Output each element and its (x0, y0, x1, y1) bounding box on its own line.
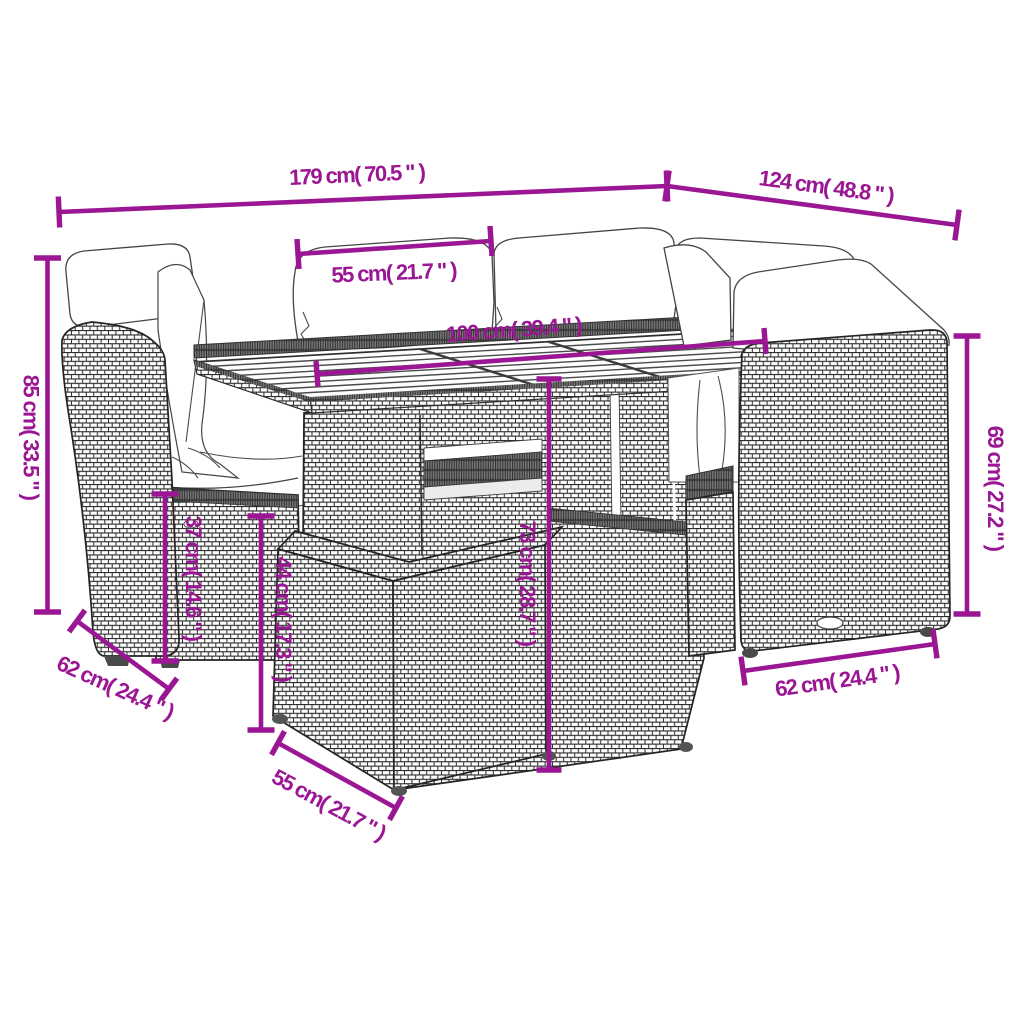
svg-text:37 cm( 14.6 " ): 37 cm( 14.6 " ) (181, 516, 206, 642)
svg-text:55 cm( 21.7 " ): 55 cm( 21.7 " ) (331, 257, 458, 287)
svg-text:69 cm( 27.2 " ): 69 cm( 27.2 " ) (983, 426, 1008, 552)
svg-text:73 cm( 28.7 " ): 73 cm( 28.7 " ) (515, 521, 540, 647)
svg-text:44 cm( 17.3 " ): 44 cm( 17.3 " ) (271, 557, 296, 683)
svg-text:85 cm( 33.5 " ): 85 cm( 33.5 " ) (19, 375, 44, 501)
